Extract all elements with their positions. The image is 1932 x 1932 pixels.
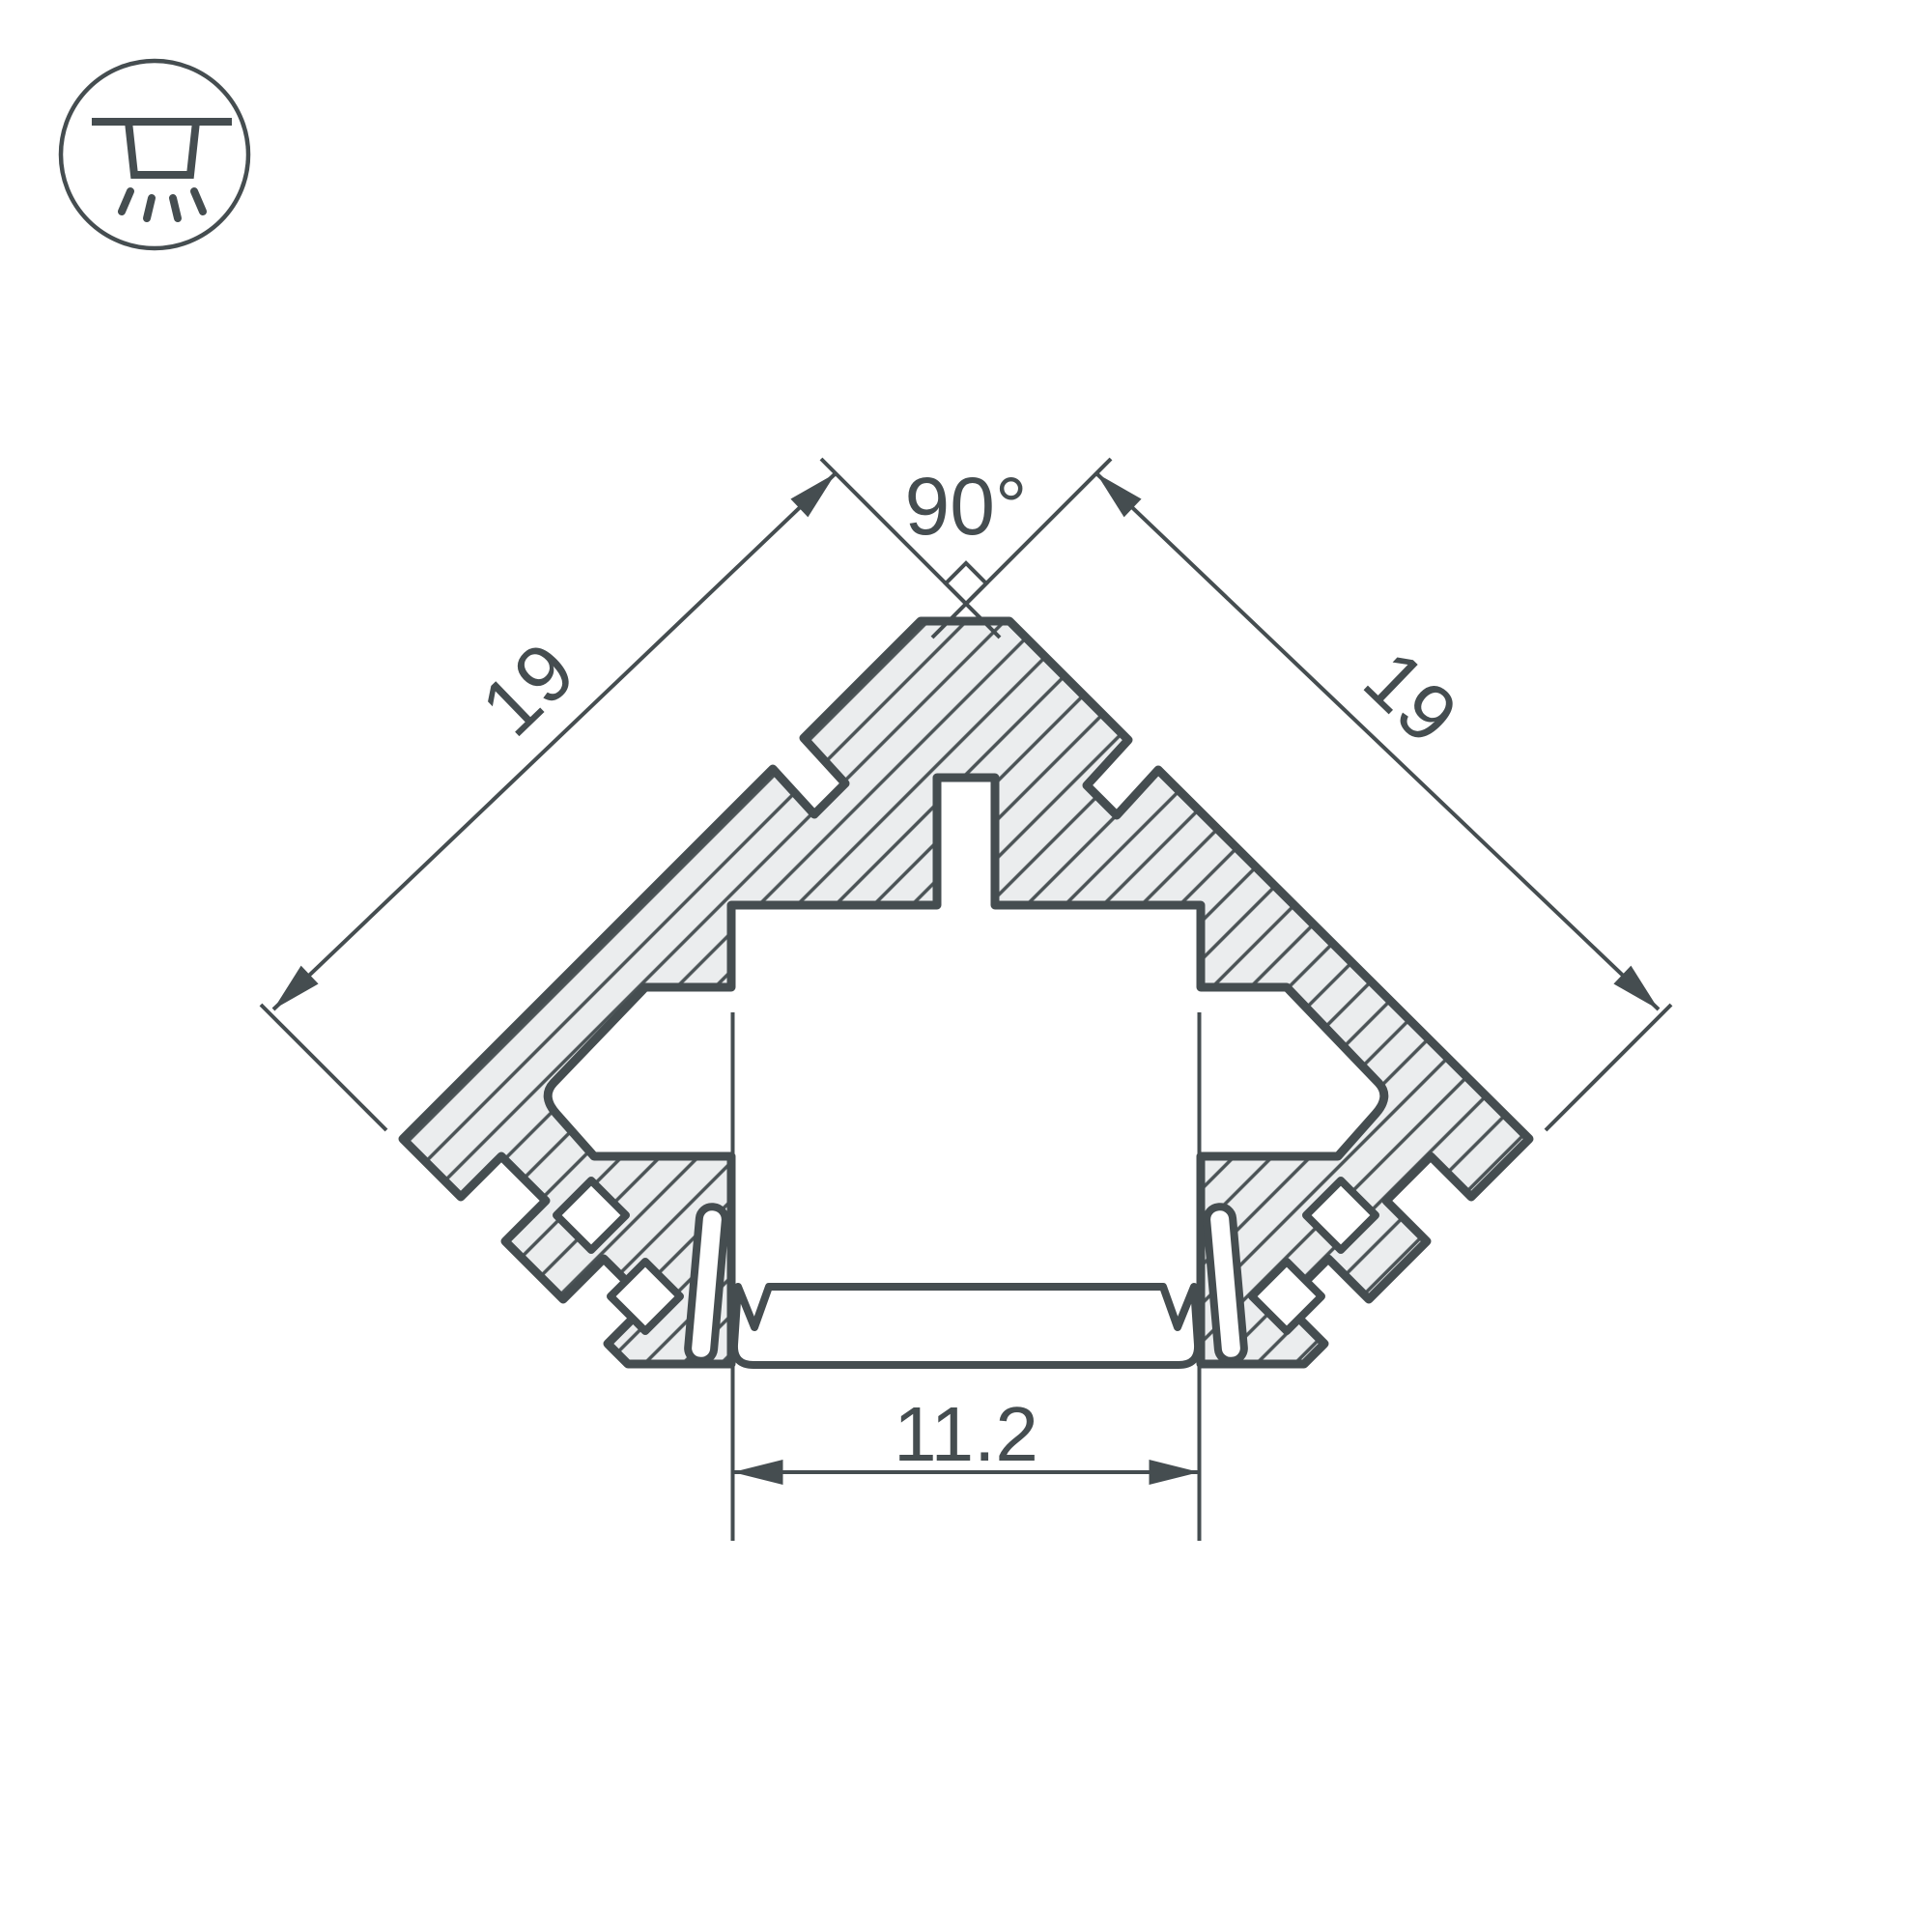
diffuser-cover: [734, 1287, 1198, 1365]
dimension-label-right: 19: [1347, 633, 1475, 761]
dimension-line-left: [273, 473, 836, 1009]
icon-fixture-body: [128, 122, 196, 175]
technical-drawing-page: 90° 19 19 11.2: [0, 0, 1932, 1932]
right-angle-marker: [946, 563, 986, 604]
corner-extension-line-left: [261, 1005, 386, 1130]
profile-drawing-canvas: 90° 19 19 11.2: [0, 0, 1932, 1932]
profile-body: [403, 621, 1529, 1364]
dimension-opening-11-2: 11.2: [733, 1012, 1200, 1541]
arrowhead: [1150, 1460, 1200, 1485]
dimension-label-opening: 11.2: [894, 1391, 1038, 1477]
dimension-line-right: [1096, 473, 1659, 1009]
arrowhead: [733, 1460, 783, 1485]
profile-hatch: [403, 621, 1529, 1364]
angle-label: 90°: [904, 461, 1027, 552]
icon-light-rays: [122, 191, 203, 218]
corner-extension-line-right: [1546, 1005, 1671, 1130]
dimension-label-left: 19: [464, 625, 592, 753]
recessed-ceiling-light-icon: [61, 61, 248, 248]
diffuser-cover-assembly: [687, 1206, 1245, 1365]
